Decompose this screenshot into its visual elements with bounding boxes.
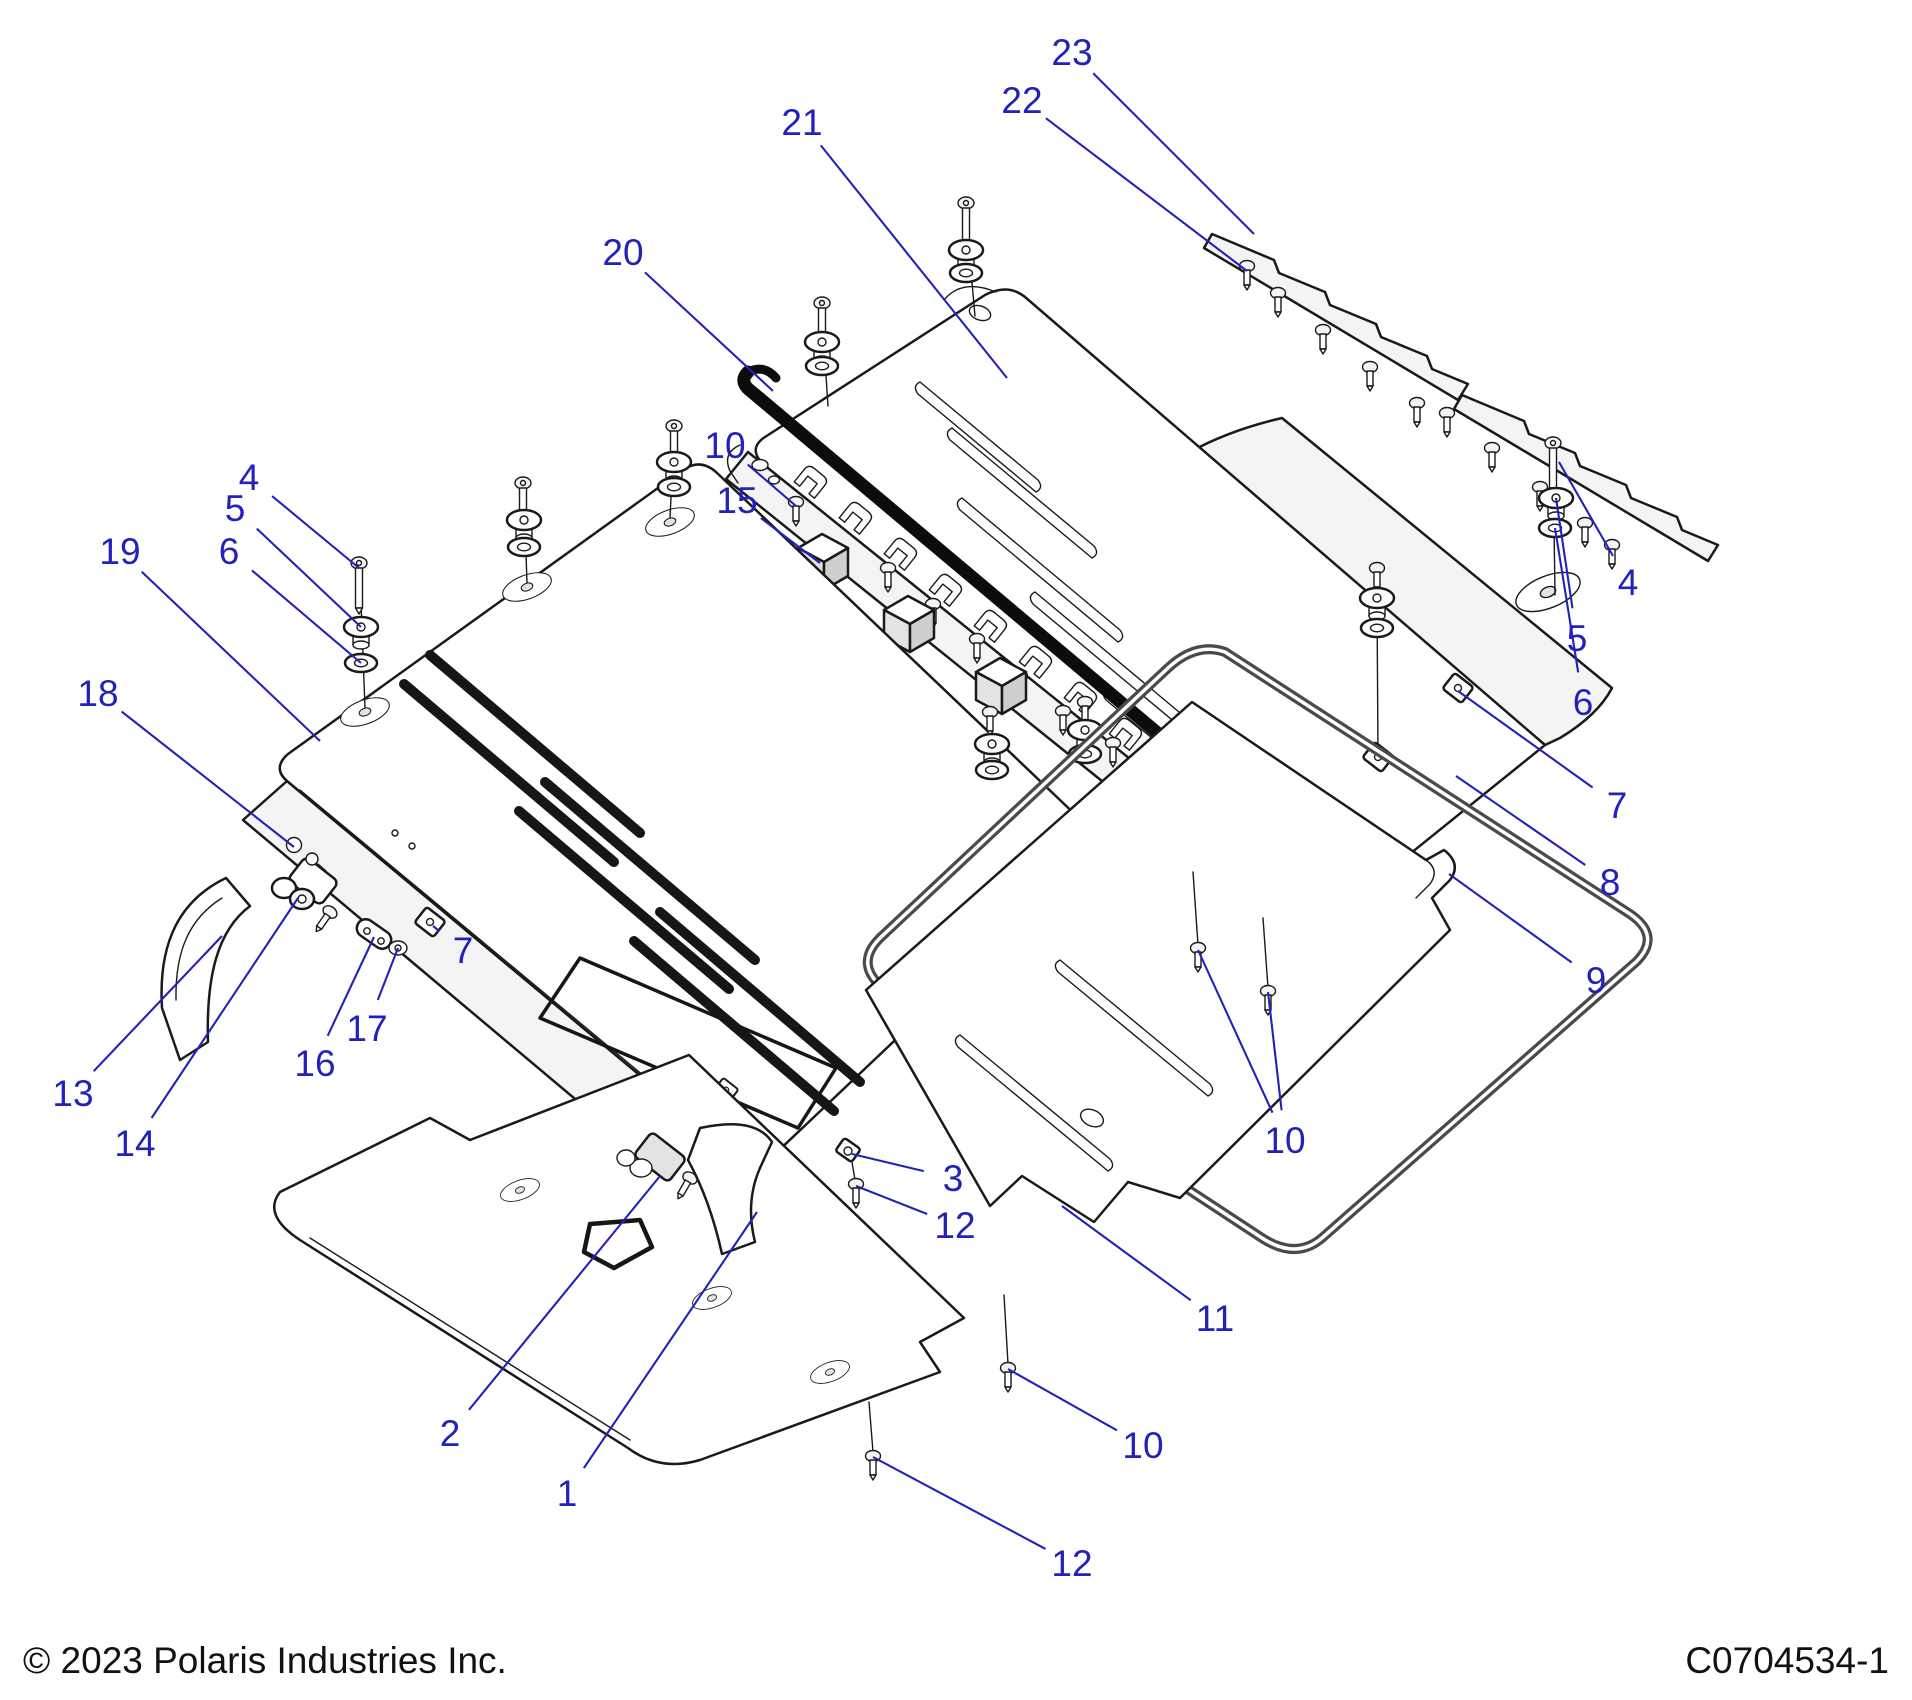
- callout-leader-19: [142, 572, 320, 741]
- callout-label-14: 14: [114, 1123, 155, 1164]
- parts-diagram-page: 1234564567789101010111212131415161718192…: [0, 0, 1912, 1700]
- callout-leader-22: [1046, 118, 1247, 271]
- document-code: C0704534-1: [1685, 1640, 1889, 1681]
- callout-label-13: 13: [52, 1073, 93, 1114]
- callout-label-10: 10: [1122, 1425, 1163, 1466]
- callout-label-22: 22: [1001, 80, 1042, 121]
- callout-label-20: 20: [602, 232, 643, 273]
- callout-leader-6: [252, 570, 361, 663]
- fastener-stack-rear-left: [805, 297, 839, 406]
- callout-label-6: 6: [219, 531, 240, 572]
- callout-label-1: 1: [557, 1473, 578, 1514]
- callout-label-7: 7: [453, 930, 474, 971]
- callout-label-18: 18: [77, 673, 118, 714]
- callout-label-21: 21: [781, 102, 822, 143]
- callout-label-5: 5: [225, 488, 246, 529]
- copyright-text: © 2023 Polaris Industries Inc.: [23, 1640, 507, 1681]
- callout-label-10: 10: [704, 425, 745, 466]
- callout-leader-8: [1456, 776, 1585, 865]
- callout-leader-3: [852, 1154, 924, 1171]
- fastener-stack-small-a: [975, 707, 1009, 780]
- callout-label-15: 15: [716, 480, 757, 521]
- callout-label-6: 6: [1573, 682, 1594, 723]
- callout-leader-23: [1093, 73, 1254, 234]
- callout-label-9: 9: [1586, 960, 1607, 1001]
- callout-leader-11: [1062, 1206, 1191, 1300]
- callout-leader-5: [257, 529, 361, 627]
- callout-label-7: 7: [1607, 785, 1628, 826]
- callout-label-10: 10: [1264, 1120, 1305, 1161]
- callout-label-11: 11: [1196, 1298, 1234, 1339]
- corner-bracket: [162, 878, 250, 1060]
- callout-label-4: 4: [1618, 562, 1639, 603]
- callout-leader-17: [378, 948, 398, 1000]
- exploded-roof-assembly-diagram: 1234564567789101010111212131415161718192…: [0, 0, 1912, 1700]
- callout-label-23: 23: [1051, 32, 1092, 73]
- callout-label-19: 19: [99, 531, 140, 572]
- callout-leader-18: [122, 712, 294, 848]
- callout-label-2: 2: [440, 1413, 461, 1454]
- callout-leader-12: [873, 1457, 1046, 1549]
- callout-leader-10: [1008, 1369, 1117, 1430]
- callout-label-12: 12: [1051, 1543, 1092, 1584]
- headliner-front: [274, 1055, 964, 1464]
- callout-leader-20: [645, 272, 773, 391]
- callout-label-16: 16: [294, 1043, 335, 1084]
- callout-label-12: 12: [934, 1205, 975, 1246]
- fastener-stack-front-mid: [507, 477, 541, 583]
- trim-strip-upper: [1204, 234, 1468, 400]
- callout-leader-4: [272, 496, 359, 568]
- callout-label-3: 3: [943, 1158, 964, 1199]
- callout-label-8: 8: [1600, 862, 1621, 903]
- fastener-stack-front-left: [344, 557, 378, 708]
- callout-leader-9: [1449, 874, 1572, 963]
- callout-label-17: 17: [346, 1008, 387, 1049]
- callout-leader-12: [856, 1186, 927, 1214]
